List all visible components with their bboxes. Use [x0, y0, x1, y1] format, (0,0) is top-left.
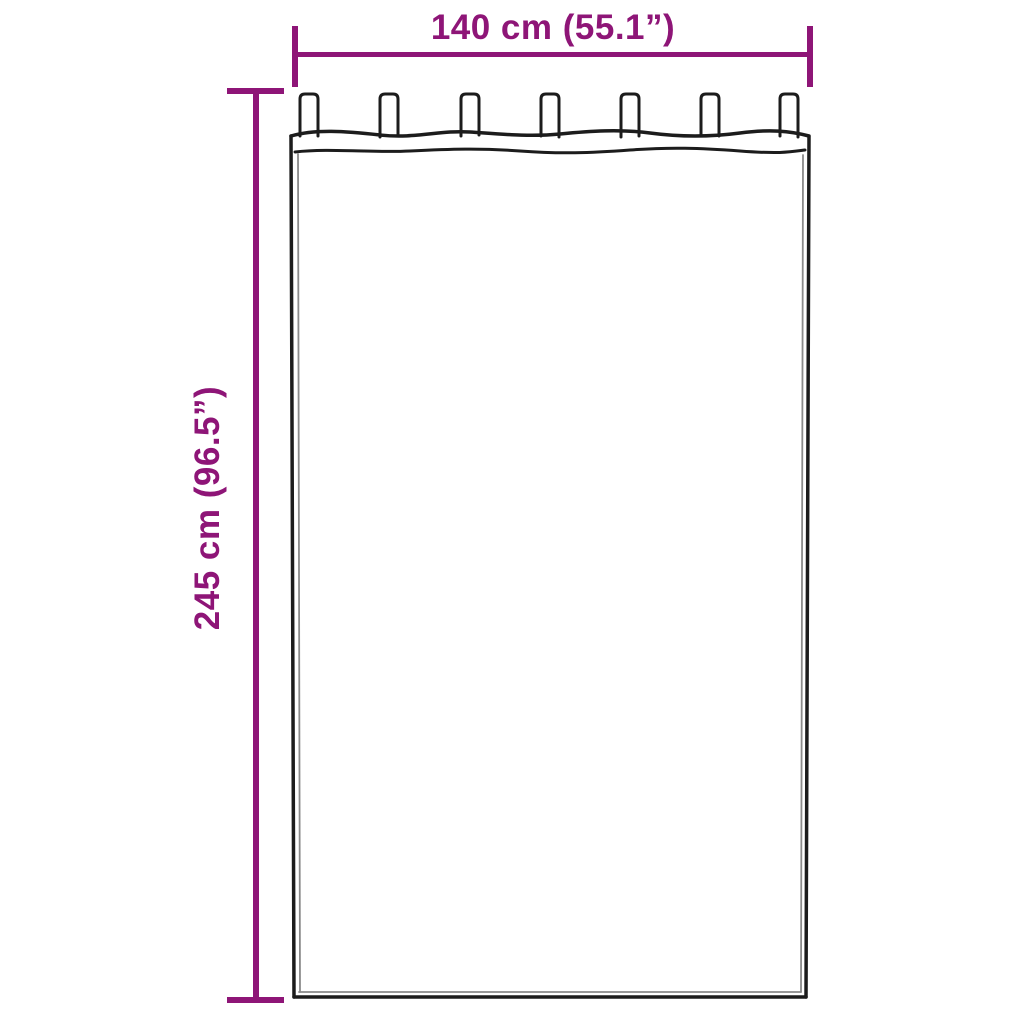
curtain-top-edge — [291, 131, 809, 136]
curtain-tab — [701, 94, 719, 136]
curtain-left-inner-hem — [298, 154, 300, 992]
curtain-panel — [291, 136, 809, 997]
curtain-dimensions-diagram: 140 cm (55.1”) 245 cm (96.5”) — [0, 0, 1024, 1024]
curtain-tab — [380, 94, 398, 137]
curtain-tabs — [300, 94, 798, 137]
curtain-right-inner-hem — [801, 155, 803, 992]
curtain-drawing — [0, 0, 1024, 1024]
curtain-tab — [541, 94, 559, 137]
curtain-tab — [461, 94, 479, 136]
curtain-right-edge — [806, 137, 809, 997]
curtain-header-seam — [295, 148, 805, 153]
curtain-tab — [300, 94, 318, 136]
curtain-header — [291, 131, 809, 153]
curtain-left-edge — [291, 136, 294, 997]
